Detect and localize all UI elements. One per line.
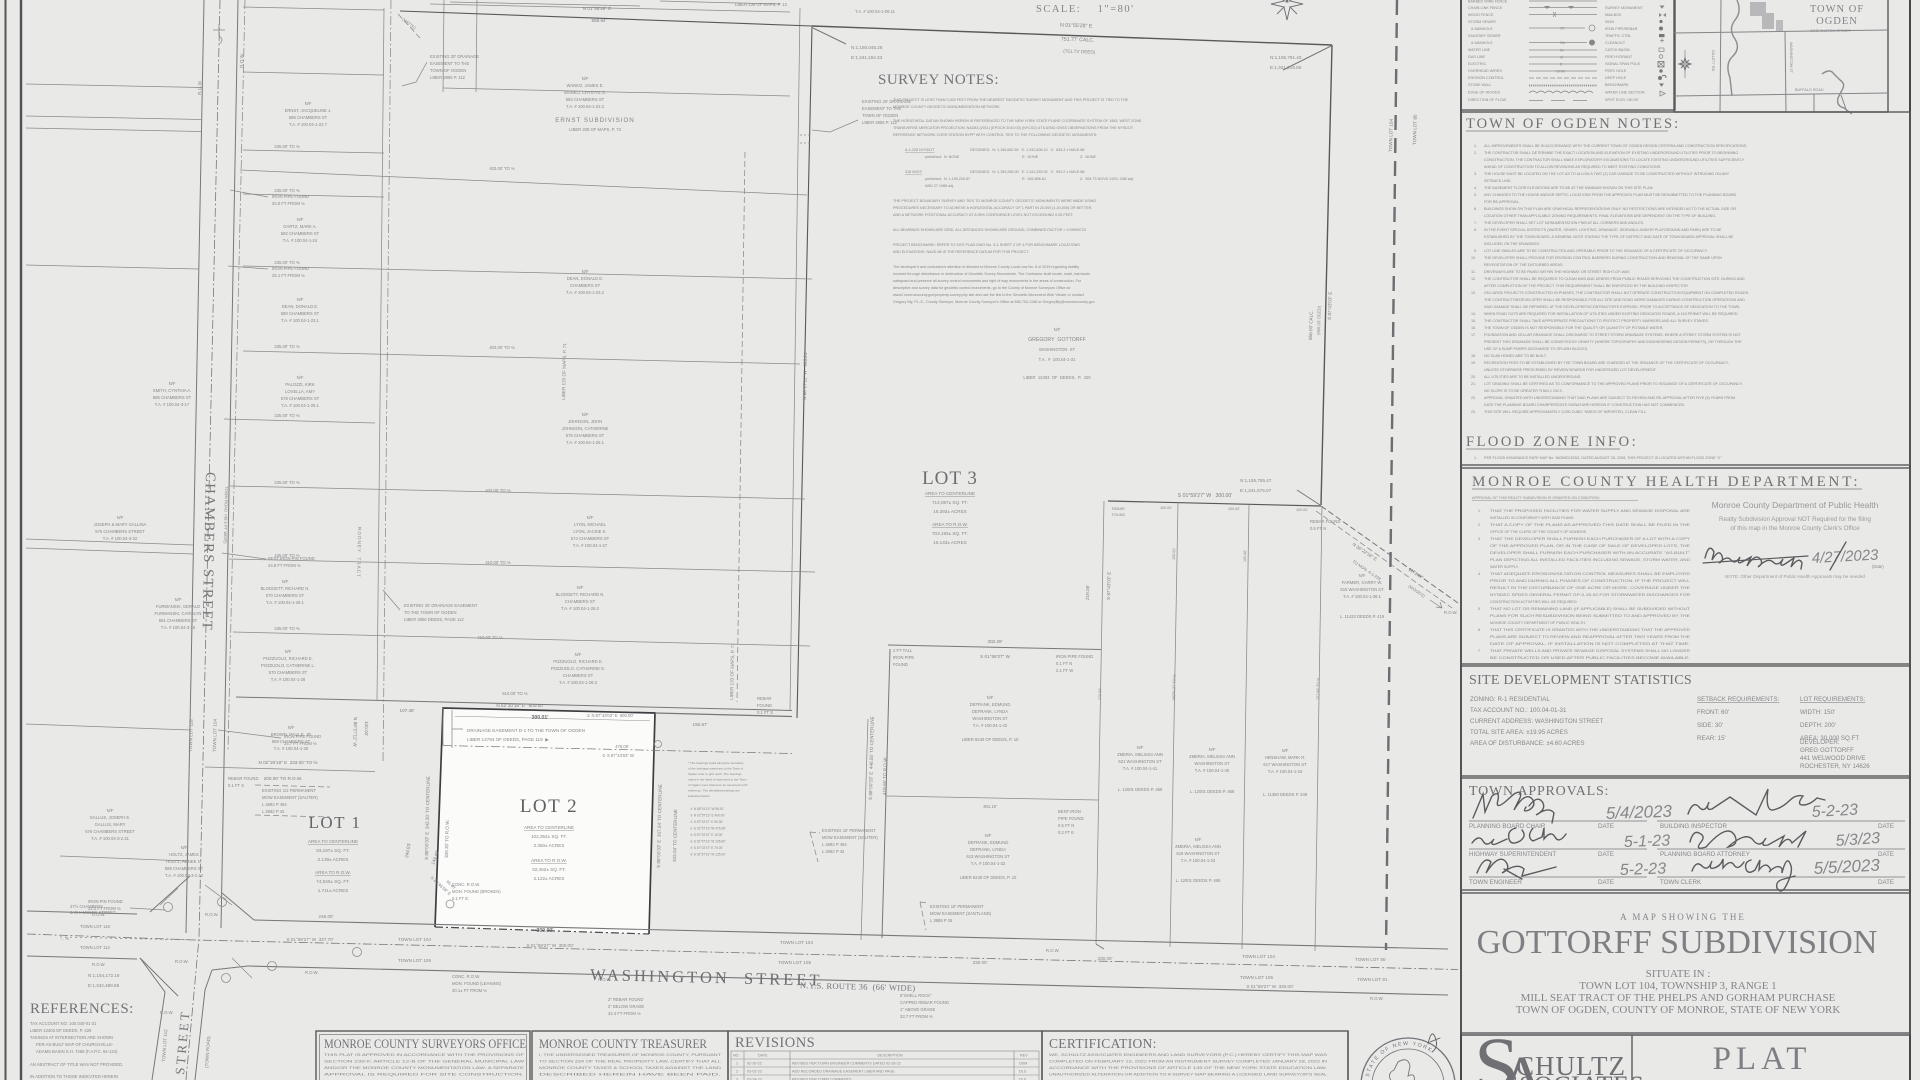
svg-text:LIBER 3906 P. 112: LIBER 3906 P. 112 <box>862 120 898 125</box>
svg-text:AFTER COMPLETION OF THE PROJEC: AFTER COMPLETION OF THE PROJECT. THIS RE… <box>1484 284 1689 288</box>
svg-text:WE, SCHULTZ ASSOCIATES ENGINEE: WE, SCHULTZ ASSOCIATES ENGINEERS AND LAN… <box>1049 1053 1328 1057</box>
svg-text:OGDEN: OGDEN <box>1816 16 1858 27</box>
svg-text:REFERENCE NETWORK CORS STATION: REFERENCE NETWORK CORS STATION NYPP WITH… <box>893 133 1097 137</box>
svg-text:FOUND: FOUND <box>757 703 772 708</box>
svg-text:235.00' TO ℅: 235.00' TO ℅ <box>274 553 300 558</box>
svg-text:1" ABOVE GRADE: 1" ABOVE GRADE <box>900 1007 935 1012</box>
svg-text:& MANHOLE: & MANHOLE <box>1471 41 1493 45</box>
svg-text:100.00': 100.00' <box>1160 506 1172 510</box>
svg-text:N/F: N/F <box>117 515 124 520</box>
svg-text:USE OF A SUMP PUMPS DISCHARGE: USE OF A SUMP PUMPS DISCHARGE TO SPLASH … <box>1484 347 1588 351</box>
svg-text:N/F: N/F <box>987 695 994 700</box>
svg-text:LOT GRADING SHALL BE CERTIFIED: LOT GRADING SHALL BE CERTIFIED AS TO CON… <box>1484 382 1743 386</box>
svg-text:WANKO, CRYSTAL S.: WANKO, CRYSTAL S. <box>564 90 606 95</box>
svg-text:8.: 8. <box>1474 228 1477 232</box>
svg-text:BENT IRON: BENT IRON <box>1058 809 1081 814</box>
svg-text:1.711± ACRES: 1.711± ACRES <box>318 888 349 893</box>
svg-text:FOUND: FOUND <box>893 662 908 667</box>
svg-text:0.2 FT E: 0.2 FT E <box>1058 830 1074 835</box>
svg-text:PERC HOLE: PERC HOLE <box>1605 69 1627 73</box>
svg-text:580 CHAMBERS ST: 580 CHAMBERS ST <box>281 311 320 316</box>
svg-text:DATE: DATE <box>1598 879 1614 886</box>
svg-text:585 CHAMBERS ST: 585 CHAMBERS ST <box>153 395 192 400</box>
svg-text:THE CONTRACTOR SHALL TAKE APPR: THE CONTRACTOR SHALL TAKE APPROPRIATE PR… <box>1484 319 1709 323</box>
svg-text:SITUATE IN :: SITUATE IN : <box>1646 968 1711 980</box>
svg-text:THAT NO LOT OR REMAINING LAND: THAT NO LOT OR REMAINING LAND (IF APPLIC… <box>1490 607 1691 611</box>
svg-text:MILL SEAT TRACT OF THE PHELPS: MILL SEAT TRACT OF THE PHELPS AND GORHAM… <box>1521 992 1836 1004</box>
svg-text:Monroe County Department of Pu: Monroe County Department of Public Healt… <box>1712 500 1879 510</box>
svg-text:LOVELLA, AMY: LOVELLA, AMY <box>285 389 315 394</box>
svg-text:SPOT ELEV ×50.00': SPOT ELEV ×50.00' <box>1605 98 1639 102</box>
svg-text:③ S 87°02'47" E 50.00': ③ S 87°02'47" E 50.00' <box>690 820 723 824</box>
svg-text:MONROE COUNTY SURVEYORS OFFICE: MONROE COUNTY SURVEYORS OFFICE <box>324 1036 526 1051</box>
svg-text:OVERHEAD WIRES: OVERHEAD WIRES <box>1468 69 1502 73</box>
svg-text:THE DEVELOPER SHALL PROVIDE FO: THE DEVELOPER SHALL PROVIDE FOR EROSION … <box>1484 256 1722 260</box>
svg-text:2 FT TALL: 2 FT TALL <box>893 648 913 653</box>
svg-text:TOWN LOT 118: TOWN LOT 118 <box>80 924 110 929</box>
svg-text:THE BASEMENT FLOOR ELEVATIONS: THE BASEMENT FLOOR ELEVATIONS ARE TO BE … <box>1484 186 1653 190</box>
svg-text:FOR RE-APPROVAL.: FOR RE-APPROVAL. <box>1484 200 1520 204</box>
svg-text:MONROE COUNTY TREASURER: MONROE COUNTY TREASURER <box>539 1036 707 1051</box>
svg-text:THE TOWN OF OGDEN IS NOT RESPO: THE TOWN OF OGDEN IS NOT RESPONSIBLE FOR… <box>1484 326 1663 330</box>
svg-text:STORM SEWER: STORM SEWER <box>1468 20 1496 24</box>
svg-text:① N 88°01'13" W 98.91': ① N 88°01'13" W 98.91' <box>690 807 724 811</box>
svg-text:THAT ADEQUATE EROSION/SILTATIO: THAT ADEQUATE EROSION/SILTATION CONTROL … <box>1490 572 1690 576</box>
svg-text:WANKO, JAMES E.: WANKO, JAMES E. <box>566 83 603 88</box>
svg-text:T.A. # 100.04-1-28.1: T.A. # 100.04-1-28.1 <box>266 600 305 605</box>
svg-text:93,187± SQ. FT.: 93,187± SQ. FT. <box>316 848 349 853</box>
svg-text:2.1 FT W: 2.1 FT W <box>1056 668 1073 673</box>
svg-text:EXISTING 1/2 PERMANENT: EXISTING 1/2 PERMANENT <box>262 788 316 793</box>
svg-text:DEEP HOLE: DEEP HOLE <box>1605 76 1627 80</box>
svg-text:COMPLETED ON FEBRUARY 10, 2022: COMPLETED ON FEBRUARY 10, 2022 FROM AN I… <box>1049 1060 1327 1064</box>
svg-text:IRON PIPE FOUND: IRON PIPE FOUND <box>272 194 309 199</box>
svg-text:G: G <box>1560 56 1563 60</box>
svg-text:REBAR: REBAR <box>757 696 771 701</box>
svg-text:Realty Subdivision Approval NO: Realty Subdivision Approval NOT Required… <box>1719 516 1871 523</box>
svg-text:32.4 FT FROM ℅: 32.4 FT FROM ℅ <box>608 1011 641 1016</box>
svg-text:TOWN ENGINEER: TOWN ENGINEER <box>1469 879 1522 886</box>
svg-text:235.00' TO ℅: 235.00' TO ℅ <box>274 480 300 485</box>
svg-text:DESIGNED: N: 1,156,682.69 E: DESIGNED: N: 1,156,682.69 E: 1,342,606.1… <box>970 148 1085 152</box>
svg-text:E: NONE: E: NONE <box>1022 155 1039 159</box>
svg-text:02-30-22: 02-30-22 <box>747 1062 762 1066</box>
svg-text:CONC. R.O.W.: CONC. R.O.W. <box>452 974 480 979</box>
svg-text:PLANNING BOARD ATTORNEY: PLANNING BOARD ATTORNEY <box>1660 851 1750 858</box>
svg-text:33.7 FT FROM ℅: 33.7 FT FROM ℅ <box>900 1014 933 1019</box>
svg-text:ST: ST <box>1560 27 1565 31</box>
svg-text:568 CHAMBERS ST: 568 CHAMBERS ST <box>272 739 311 744</box>
svg-text:JOHNSON, JOHN: JOHNSON, JOHN <box>568 419 602 424</box>
svg-text:300.01': 300.01' <box>531 715 548 721</box>
svg-text:10.: 10. <box>1471 256 1476 260</box>
svg-text:A MAP SHOWING THE: A MAP SHOWING THE <box>1620 912 1746 922</box>
svg-text:MON. FOUND (BROKEN): MON. FOUND (BROKEN) <box>452 889 501 894</box>
svg-text:② N 02°57'13" E 400.00': ② N 02°57'13" E 400.00' <box>690 814 725 818</box>
svg-text:REBAR: REBAR <box>1112 507 1125 511</box>
svg-text:PER AS-BUILT MAP OF CHURCHVILL: PER AS-BUILT MAP OF CHURCHVILLE- <box>36 1042 114 1047</box>
svg-text:T.A. # 100.04-1-40: T.A. # 100.04-1-40 <box>1195 768 1230 773</box>
svg-text:DSM: DSM <box>1019 1062 1027 1066</box>
svg-text:descriptive and survey data fo: descriptive and survey data for geodetic… <box>893 286 1071 290</box>
svg-text:THE HORIZONTAL DATUM SHOWN HER: THE HORIZONTAL DATUM SHOWN HEREIN IS REF… <box>893 119 1142 123</box>
svg-text:N/F: N/F <box>1195 837 1202 842</box>
svg-text:589 CHAMBERS ST: 589 CHAMBERS ST <box>165 866 204 871</box>
svg-text:1.: 1. <box>1474 144 1477 148</box>
svg-text:TOWN LOT 104: TOWN LOT 104 <box>1388 118 1394 152</box>
svg-text:ALL BEARINGS SHOWN ARE GRID, A: ALL BEARINGS SHOWN ARE GRID, ALL DISTANC… <box>893 228 1086 232</box>
svg-text:24.8 FT FROM ℅: 24.8 FT FROM ℅ <box>268 563 301 568</box>
svg-text:PROJECT BENCHMARK: REFER TO SI: PROJECT BENCHMARK: REFER TO SITE PLAN DW… <box>893 243 1080 247</box>
svg-text:92,452± SQ. FT.: 92,452± SQ. FT. <box>532 867 565 872</box>
svg-text:235.00' TO ℅: 235.00' TO ℅ <box>274 188 300 193</box>
svg-text:CATCH BASIN: CATCH BASIN <box>1605 48 1630 52</box>
svg-text:IN THE EVENT SPECIAL DISTRICTS: IN THE EVENT SPECIAL DISTRICTS (WATER, S… <box>1484 228 1722 232</box>
svg-text:CONC. R.O.W.: CONC. R.O.W. <box>452 882 480 887</box>
svg-text:856.00' CALC.: 856.00' CALC. <box>1308 310 1314 340</box>
svg-text:N 88°27'11" W: N 88°27'11" W <box>352 717 358 747</box>
svg-text:L. 12001 DEEDS P. 468: L. 12001 DEEDS P. 468 <box>1190 789 1235 794</box>
svg-text:REVISIONS: REVISIONS <box>735 1035 815 1051</box>
svg-text:DIRECTION OF FLOW: DIRECTION OF FLOW <box>1468 98 1507 102</box>
svg-text:S 01°59'27" W 330.00': S 01°59'27" W 330.00' <box>1246 984 1293 989</box>
svg-text:(Date): (Date) <box>1872 564 1884 569</box>
svg-text:of Ogden were based on an assu: of Ogden were based on an assumed north <box>688 783 748 787</box>
svg-text:T.A. # 100.04-3-17: T.A. # 100.04-3-17 <box>155 402 190 407</box>
svg-text:3.: 3. <box>1478 537 1481 541</box>
svg-text:T.A. # 100.04-1-28: T.A. # 100.04-1-28 <box>271 677 306 682</box>
svg-text:330.00': 330.00' <box>1098 956 1113 961</box>
svg-text:N/F: N/F <box>297 217 304 222</box>
svg-text:BLODGETT, RICHARD N.: BLODGETT, RICHARD N. <box>556 592 605 597</box>
svg-text:UNAUTHORIZED ALTERATION OR ADD: UNAUTHORIZED ALTERATION OR ADDITION TO A… <box>1049 1073 1327 1077</box>
svg-text:DATE: DATE <box>758 1054 768 1058</box>
svg-text:ALL UTILITIES ARE TO BE INSTAL: ALL UTILITIES ARE TO BE INSTALLED UNDERG… <box>1484 375 1581 379</box>
svg-text:L. 12001 DEEDS P. 469: L. 12001 DEEDS P. 469 <box>1176 878 1221 883</box>
svg-text:219.06': 219.06' <box>1085 585 1090 600</box>
svg-text:574 CHAMBERS ST: 574 CHAMBERS ST <box>571 536 610 541</box>
svg-text:LOT REQUIREMENTS:: LOT REQUIREMENTS: <box>1800 696 1865 703</box>
svg-text:A-1-228 NYSDOT: A-1-228 NYSDOT <box>905 148 935 152</box>
svg-text:N/F: N/F <box>282 579 289 584</box>
svg-text:586 CHAMBERS ST: 586 CHAMBERS ST <box>289 115 328 120</box>
svg-text:POZZUOLO, CATHERINE E.: POZZUOLO, CATHERINE E. <box>551 666 605 671</box>
svg-text:ROONEY TRACT: ROONEY TRACT <box>356 527 362 578</box>
svg-text:JOSEPH & MARY GALLINA: JOSEPH & MARY GALLINA <box>94 522 147 527</box>
svg-text:Ogden refer to grid north. The: Ogden refer to grid north. The bearings <box>688 772 742 776</box>
svg-text:30.1± FT FROM ℅: 30.1± FT FROM ℅ <box>452 988 487 993</box>
svg-text:5-2-23: 5-2-23 <box>1620 860 1667 879</box>
svg-text:MOW EASEMENT (SAUTER): MOW EASEMENT (SAUTER) <box>822 835 878 840</box>
svg-text:THAT PRIVATE WELLS AND PRIVATE: THAT PRIVATE WELLS AND PRIVATE SEWAGE DI… <box>1490 649 1690 653</box>
svg-text:IRON PIPE FOUND: IRON PIPE FOUND <box>272 266 309 271</box>
svg-text:WOOD FENCE: WOOD FENCE <box>1468 13 1494 17</box>
svg-text:WATER SUPPLY.: WATER SUPPLY. <box>1490 565 1519 569</box>
svg-text:S 01°59'27" W 337.70': S 01°59'27" W 337.70' <box>286 937 333 942</box>
svg-text:BARBED WIRE FENCE: BARBED WIRE FENCE <box>1468 0 1508 4</box>
svg-text:L. 11350 DEEDS P. 348: L. 11350 DEEDS P. 348 <box>1263 792 1308 797</box>
svg-text:of this map in the Monroe Coun: of this map in the Monroe County Clerk's… <box>1730 525 1860 532</box>
svg-text:PLAT: PLAT <box>1713 1041 1812 1077</box>
svg-text:DEAN, DONALD E.: DEAN, DONALD E. <box>282 304 319 309</box>
svg-text:ON LARGE PROJECTS CONSTRUCTED: ON LARGE PROJECTS CONSTRUCTED IN PHASES,… <box>1484 291 1749 295</box>
svg-text:THIS PROJECT IS LESS THAN 3,00: THIS PROJECT IS LESS THAN 3,000 FEET FRO… <box>893 98 1129 102</box>
svg-text:LYON, JACKIE K.: LYON, JACKIE K. <box>573 529 606 534</box>
svg-text:L. 12001 DEEDS P. 468: L. 12001 DEEDS P. 468 <box>1118 787 1163 792</box>
svg-text:1.: 1. <box>1478 509 1481 513</box>
svg-text:Z: NONE: Z: NONE <box>1080 155 1097 159</box>
svg-text:246.00': 246.00' <box>319 914 334 919</box>
svg-text:GOTTORFF SUBDIVISION: GOTTORFF SUBDIVISION <box>1477 924 1878 961</box>
svg-text:① N 87°43'03" E 600.00': ① N 87°43'03" E 600.00' <box>587 713 634 718</box>
svg-text:GREG GOTTORFF: GREG GOTTORFF <box>1800 747 1854 754</box>
svg-text:3.: 3. <box>1474 172 1477 176</box>
svg-text:BUFFALO ROAD: BUFFALO ROAD <box>1795 88 1824 92</box>
svg-text:LOT 3: LOT 3 <box>922 468 978 489</box>
svg-text:THE HOUSE MUST BE LOCATED ON T: THE HOUSE MUST BE LOCATED ON THE LOT AS … <box>1484 172 1730 176</box>
svg-text:27½ CHAMBERS: 27½ CHAMBERS <box>70 904 103 909</box>
svg-text:2.350± ACRES: 2.350± ACRES <box>534 843 565 848</box>
svg-text:N/F: N/F <box>582 269 589 274</box>
svg-text:2.: 2. <box>1478 523 1481 527</box>
svg-text:T.A. # 100.04-1-30: T.A. # 100.04-1-30 <box>274 746 309 751</box>
svg-text:TOWN OF OGDEN: TOWN OF OGDEN <box>430 68 466 73</box>
svg-text:2" REBAR FOUND: 2" REBAR FOUND <box>608 997 643 1002</box>
svg-text:13.: 13. <box>1471 291 1476 295</box>
svg-text:309.30' TO R.O.W.: 309.30' TO R.O.W. <box>444 819 450 858</box>
svg-text:DRIVEWAYS ARE TO BE PAVED WITH: DRIVEWAYS ARE TO BE PAVED WITHIN THE HIG… <box>1484 270 1630 274</box>
svg-text:GALLUS, JOSEPH E.: GALLUS, JOSEPH E. <box>90 815 131 820</box>
svg-text:410.00' TO ℅: 410.00' TO ℅ <box>477 635 503 640</box>
svg-text:POZZUOLO, RICHARD E.: POZZUOLO, RICHARD E. <box>553 659 603 664</box>
svg-text:S 87°43'03" E: S 87°43'03" E <box>1106 572 1112 600</box>
svg-text:200.00' TO R.O.W.: 200.00' TO R.O.W. <box>264 776 303 781</box>
svg-text:PIPE FOUND: PIPE FOUND <box>1058 816 1084 821</box>
svg-text:CAPPED REBAR FOUND: CAPPED REBAR FOUND <box>900 1000 949 1005</box>
svg-text:SIDE: 30': SIDE: 30' <box>1697 722 1723 729</box>
svg-text:Z: 594.73 NGVD 1929, 3/88 adj: Z: 594.73 NGVD 1929, 3/88 adj. <box>1080 177 1134 181</box>
svg-text:0.5 FT N: 0.5 FT N <box>1058 823 1074 828</box>
svg-text:418.55' TO R.O.W.: 418.55' TO R.O.W. <box>882 756 888 795</box>
svg-text:441 WELWOOD DRIVE: 441 WELWOOD DRIVE <box>1800 755 1866 762</box>
svg-text:581 CHAMBERS ST: 581 CHAMBERS ST <box>159 618 198 623</box>
svg-text:410.00' TO ℅: 410.00' TO ℅ <box>485 560 511 565</box>
svg-text:2: 2 <box>736 1070 738 1074</box>
svg-text:EXISTING 20' DRAINAGE: EXISTING 20' DRAINAGE <box>430 54 479 59</box>
svg-text:TOWN OF: TOWN OF <box>1810 4 1864 15</box>
svg-text:0.1 FT S: 0.1 FT S <box>757 710 773 715</box>
svg-text:ZMERIA, MELISSA ANN: ZMERIA, MELISSA ANN <box>1117 752 1163 757</box>
svg-text:570 CHAMBERS ST: 570 CHAMBERS ST <box>269 670 308 675</box>
svg-text:N/F: N/F <box>107 808 114 813</box>
svg-text:16.: 16. <box>1471 326 1476 330</box>
svg-text:T.A. # 100.04-1-23.1: T.A. # 100.04-1-23.1 <box>281 318 320 323</box>
svg-text:DESCRIBED HEREIN HAVE BEEN PAI: DESCRIBED HEREIN HAVE BEEN PAID. <box>539 1073 721 1077</box>
svg-text:SANITARY SEWER: SANITARY SEWER <box>1468 34 1501 38</box>
svg-text:DATE: DATE <box>1878 823 1894 830</box>
svg-text:INCLUDED ON THE DRAWINGS.: INCLUDED ON THE DRAWINGS. <box>1484 242 1540 246</box>
svg-text:ELECTRIC: ELECTRIC <box>1468 62 1487 66</box>
svg-text:TOWN LOT 105: TOWN LOT 105 <box>778 960 811 965</box>
svg-text:T.A. # 100.04-1-42: T.A. # 100.04-1-42 <box>973 723 1008 728</box>
svg-text:IRON PIPE: IRON PIPE <box>893 655 914 660</box>
svg-text:N/F: N/F <box>575 652 582 657</box>
svg-text:DEFRANK, EDMUND: DEFRANK, EDMUND <box>968 840 1009 845</box>
svg-text:④ S 02°57'13" W 476.08': ④ S 02°57'13" W 476.08' <box>690 827 726 831</box>
svg-text:576 CHAMBERS ST: 576 CHAMBERS ST <box>566 433 605 438</box>
svg-text:N/F: N/F <box>288 725 295 730</box>
svg-text:575 CHAMBERS STREET: 575 CHAMBERS STREET <box>95 529 145 534</box>
svg-text:R.O.W.: R.O.W. <box>239 53 244 68</box>
svg-text:MONROE COUNTY HEALTH DEPARTMEN: MONROE COUNTY HEALTH DEPARTMENT: <box>1472 474 1860 490</box>
svg-text:LIBER 3906 P. 112: LIBER 3906 P. 112 <box>430 75 466 80</box>
svg-text:TOWN APPROVALS:: TOWN APPROVALS: <box>1469 784 1609 799</box>
svg-text:20.: 20. <box>1471 375 1476 379</box>
svg-text:PALOZZI, KIRK: PALOZZI, KIRK <box>285 382 314 387</box>
svg-text:SMITH, CYNTHIA A.: SMITH, CYNTHIA A. <box>153 388 191 393</box>
svg-text:100.00': 100.00' <box>1243 550 1247 562</box>
svg-text:318 WICS: 318 WICS <box>905 170 922 174</box>
svg-text:11.: 11. <box>1471 270 1476 274</box>
svg-text:619 WASHINGTON ST: 619 WASHINGTON ST <box>1176 851 1220 856</box>
svg-text:L. 11433 DEEDS P. 419: L. 11433 DEEDS P. 419 <box>1340 614 1385 619</box>
svg-text:reference. The deed/plat beari: reference. The deed/plat bearings are <box>688 789 740 793</box>
svg-text:safeguard and preserve all sur: safeguard and preserve all survey contro… <box>893 279 1082 283</box>
svg-text:⑧ S 02°57'13" W 125.00': ⑧ S 02°57'13" W 125.00' <box>690 853 726 857</box>
svg-text:SURVEY MONUMENT: SURVEY MONUMENT <box>1605 6 1644 10</box>
svg-text:DATE: DATE <box>1598 851 1614 858</box>
svg-text:THE CONTRACTOR SHALL DETERMINE: THE CONTRACTOR SHALL DETERMINE THE EXACT… <box>1484 151 1738 155</box>
svg-text:T.A. # 100.04-1-22.2: T.A. # 100.04-1-22.2 <box>566 104 605 109</box>
svg-text:CHAMBERS ST: CHAMBERS ST <box>565 599 596 604</box>
svg-text:R.O.W.: R.O.W. <box>197 80 202 95</box>
svg-text:T.A. # 100.04-1-31: T.A. # 100.04-1-31 <box>1039 357 1076 362</box>
svg-text:5"SHELL ROCK": 5"SHELL ROCK" <box>900 993 932 998</box>
svg-text:WHEN ROAD CUTS ARE REQUIRED FO: WHEN ROAD CUTS ARE REQUIRED FOR INSTALLA… <box>1484 312 1738 316</box>
svg-text:235.00' TO ℅: 235.00' TO ℅ <box>274 413 300 418</box>
svg-text:PER FLOOD INSURANCE RATE MAP N: PER FLOOD INSURANCE RATE MAP No. 36055C0… <box>1484 456 1722 460</box>
svg-text:N/F: N/F <box>985 833 992 838</box>
svg-text:SITE DEVELOPMENT STATISTICS: SITE DEVELOPMENT STATISTICS <box>1469 673 1692 688</box>
svg-text:of the drainage easement to th: of the drainage easement to the Town of <box>688 767 743 771</box>
svg-text:476.08': 476.08' <box>615 744 629 749</box>
svg-text:5.: 5. <box>1474 193 1477 197</box>
svg-text:TAX ACCOUNT NO.: 100.04-01-31: TAX ACCOUNT NO.: 100.04-01-31 <box>1470 707 1567 714</box>
svg-text:WIDTH: 150': WIDTH: 150' <box>1800 709 1835 716</box>
svg-text:BUILDINGS SHOW ON THIS PLAN AR: BUILDINGS SHOW ON THIS PLAN ARE GRAPHICA… <box>1484 207 1736 211</box>
svg-text:ERNST, JACQUELINE J.: ERNST, JACQUELINE J. <box>285 108 332 113</box>
svg-text:N 02°20'19" E 600.00': N 02°20'19" E 600.00' <box>496 703 543 708</box>
svg-text:NO SLOPE IS TO BE GREATER THAN: NO SLOPE IS TO BE GREATER THAN 1 ON 3. <box>1484 389 1563 393</box>
svg-text:AREA OF DISTURBANCE: ±4.60 ACR: AREA OF DISTURBANCE: ±4.60 ACRES <box>1470 740 1584 747</box>
svg-text:2.122± ACRES: 2.122± ACRES <box>534 876 565 881</box>
svg-text:STONE WALL: STONE WALL <box>1468 83 1492 87</box>
svg-text:TOWN LOT 80: TOWN LOT 80 <box>1412 114 1418 145</box>
svg-text:WATER LINE SECTION: WATER LINE SECTION <box>1605 91 1645 95</box>
svg-text:R.O.W.: R.O.W. <box>1370 996 1384 1001</box>
svg-text:FARMER, GARRY W.: FARMER, GARRY W. <box>1342 580 1383 585</box>
svg-text:AN ABSTRACT OF TITLE WAS NOT P: AN ABSTRACT OF TITLE WAS NOT PROVIDED. <box>30 1062 123 1067</box>
svg-text:EXISTING 20' DRAINAGE: EXISTING 20' DRAINAGE <box>862 99 911 104</box>
svg-text:235.00' TO ℅: 235.00' TO ℅ <box>274 344 300 349</box>
svg-text:N/F: N/F <box>305 101 312 106</box>
svg-text:127.00' TO ℅: 127.00' TO ℅ <box>1316 677 1320 700</box>
svg-text:CHAMBERS ST: CHAMBERS ST <box>563 673 594 678</box>
svg-text:ERNST SUBDIVISION: ERNST SUBDIVISION <box>555 117 634 124</box>
svg-text:FURMANSKI, GERALD: FURMANSKI, GERALD <box>156 604 200 609</box>
svg-text:R.O.W.: R.O.W. <box>92 962 106 967</box>
svg-text:S 01°59'27" W 300.00': S 01°59'27" W 300.00' <box>1178 493 1233 499</box>
svg-text:SSOCIATES: SSOCIATES <box>1504 1071 1644 1080</box>
svg-text:W: W <box>1560 49 1564 53</box>
svg-text:2.139± ACRES: 2.139± ACRES <box>318 857 349 862</box>
svg-text:615 WASHINGTON ST: 615 WASHINGTON ST <box>1340 587 1384 592</box>
svg-text:CURRENT ADDRESS: WASHINGTON ST: CURRENT ADDRESS: WASHINGTON STREET <box>1470 718 1603 725</box>
svg-text:235.00' TO ℅: 235.00' TO ℅ <box>274 626 300 631</box>
svg-text:ESTABLISHED BY THE TOWN BOARD,: ESTABLISHED BY THE TOWN BOARD, A GENERAL… <box>1484 235 1734 239</box>
svg-text:THIS PLAT IS APPROVED IN ACCOR: THIS PLAT IS APPROVED IN ACCORDANCE WITH… <box>324 1053 525 1057</box>
svg-text:R.O.W.: R.O.W. <box>160 1010 174 1015</box>
svg-text:21.: 21. <box>1471 382 1476 386</box>
svg-text:PLANNING BOARD CHAIR: PLANNING BOARD CHAIR <box>1469 823 1546 830</box>
svg-text:MAILBOX: MAILBOX <box>1605 13 1622 17</box>
svg-text:DATE OF APPROVAL, IF INSTALLAT: DATE OF APPROVAL, IF INSTALLATION IS NOT… <box>1490 642 1690 646</box>
svg-text:17.: 17. <box>1471 333 1476 337</box>
svg-text:5.: 5. <box>1478 607 1481 611</box>
svg-text:DEPTH: 200': DEPTH: 200' <box>1800 722 1836 729</box>
svg-text:WASHINGTON ST: WASHINGTON ST <box>1039 347 1076 352</box>
svg-text:APPROVAL GRANTED WITH UNDERSTA: APPROVAL GRANTED WITH UNDERSTANDING THAT… <box>1484 396 1735 400</box>
svg-text:TOWN LOT 80: TOWN LOT 80 <box>1355 957 1386 962</box>
svg-text:R.O.W.: R.O.W. <box>1444 610 1458 615</box>
svg-text:WASHINGTON ST: WASHINGTON ST <box>1194 761 1230 766</box>
svg-text:② S 87°43'03" W: ② S 87°43'03" W <box>602 753 634 758</box>
svg-text:NYSDEC SPDES GENERAL PERMIT GP: NYSDEC SPDES GENERAL PERMIT GP-0-15-02 F… <box>1490 593 1690 597</box>
svg-text:N:1,154,172.18: N:1,154,172.18 <box>88 973 120 978</box>
svg-text:TRANSVERSE MERCATOR PROJECTION: TRANSVERSE MERCATOR PROJECTION, NAD83 (2… <box>893 126 1134 130</box>
svg-text:N/F: N/F <box>582 76 589 81</box>
svg-text:THAT THE PROPOSED FACILITIES F: THAT THE PROPOSED FACILITIES FOR WATER S… <box>1490 509 1691 513</box>
svg-text:APPROVAL IS REQUIRED FOR SITE: APPROVAL IS REQUIRED FOR SITE CONSTRUCTI… <box>324 1073 524 1077</box>
svg-text:4.: 4. <box>1478 572 1481 576</box>
svg-text:LYON, MICHAEL: LYON, MICHAEL <box>574 522 607 527</box>
svg-text:TOWN CLERK: TOWN CLERK <box>1660 879 1702 886</box>
svg-text:T.A. # 100.04-1-28.3: T.A. # 100.04-1-28.3 <box>559 680 598 685</box>
svg-text:DATE THE PLANNING BOARD CHAIRP: DATE THE PLANNING BOARD CHAIRPERSON'S SI… <box>1484 403 1685 407</box>
svg-text:FURMANSKI, CAROLYN: FURMANSKI, CAROLYN <box>155 611 202 616</box>
svg-text:PLANS ARE SUBJECT TO REVIEW AN: PLANS ARE SUBJECT TO REVIEW AND REAPPROV… <box>1490 635 1691 639</box>
svg-text:GARTZ, MARK A.: GARTZ, MARK A. <box>283 224 316 229</box>
svg-text:IRON PIPE/REBAR: IRON PIPE/REBAR <box>1605 27 1638 31</box>
svg-text:(856.03' DEED): (856.03' DEED) <box>1316 305 1322 335</box>
svg-text:THE DEVELOPER SHALL SET LOT MO: THE DEVELOPER SHALL SET LOT MONUMENTATIO… <box>1484 221 1644 225</box>
svg-text:03-02-23: 03-02-23 <box>747 1070 762 1074</box>
svg-text:1.: 1. <box>1474 456 1477 460</box>
svg-text:E:1,341,219.06: E:1,341,219.06 <box>1270 65 1302 70</box>
svg-text:N/F: N/F <box>1359 573 1366 578</box>
svg-text:ADD RECORDED DRAINAGE EASEMENT: ADD RECORDED DRAINAGE EASEMENT LIBER AND… <box>792 1070 895 1074</box>
svg-text:100.00': 100.00' <box>1296 508 1308 512</box>
svg-text:FIRE HYDRANT: FIRE HYDRANT <box>1605 55 1633 59</box>
svg-text:T.A. # 100.04-1-08.11: T.A. # 100.04-1-08.11 <box>855 9 896 14</box>
svg-text:7.: 7. <box>1478 649 1481 653</box>
svg-text:100.00': 100.00' <box>364 721 369 736</box>
svg-text:T.A. # 100.04-1-41: T.A. # 100.04-1-41 <box>1123 766 1158 771</box>
svg-text:0.1 FT S: 0.1 FT S <box>228 783 244 788</box>
svg-text:DEFRANK, LYNDA: DEFRANK, LYNDA <box>970 847 1006 852</box>
svg-text:9.: 9. <box>1474 249 1477 253</box>
svg-text:OFFICE OF THE CLERK OF THE COU: OFFICE OF THE CLERK OF THE COUNTY OF MON… <box>1490 530 1587 534</box>
